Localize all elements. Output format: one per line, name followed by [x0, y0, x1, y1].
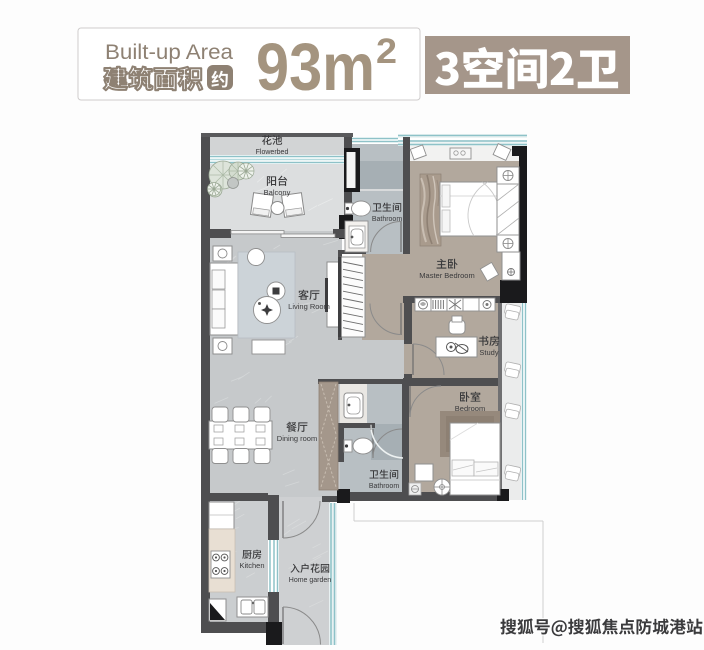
svg-text:Built-up Area: Built-up Area: [105, 40, 233, 64]
svg-text:Dining room: Dining room: [277, 434, 317, 443]
svg-text:Bathroom: Bathroom: [372, 216, 403, 223]
svg-text:2: 2: [376, 32, 397, 71]
svg-text:Home garden: Home garden: [289, 577, 332, 584]
svg-text:93m: 93m: [256, 30, 375, 105]
svg-text:Living Room: Living Room: [288, 302, 330, 311]
svg-text:Kitchen: Kitchen: [239, 561, 264, 570]
svg-text:Balcony: Balcony: [264, 188, 291, 197]
svg-text:Master Bedroom: Master Bedroom: [419, 271, 474, 280]
svg-text:Study: Study: [479, 348, 498, 357]
svg-text:Bathroom: Bathroom: [369, 483, 400, 490]
svg-text:Flowerbed: Flowerbed: [256, 149, 289, 156]
svg-text:Bedroom: Bedroom: [455, 404, 485, 413]
